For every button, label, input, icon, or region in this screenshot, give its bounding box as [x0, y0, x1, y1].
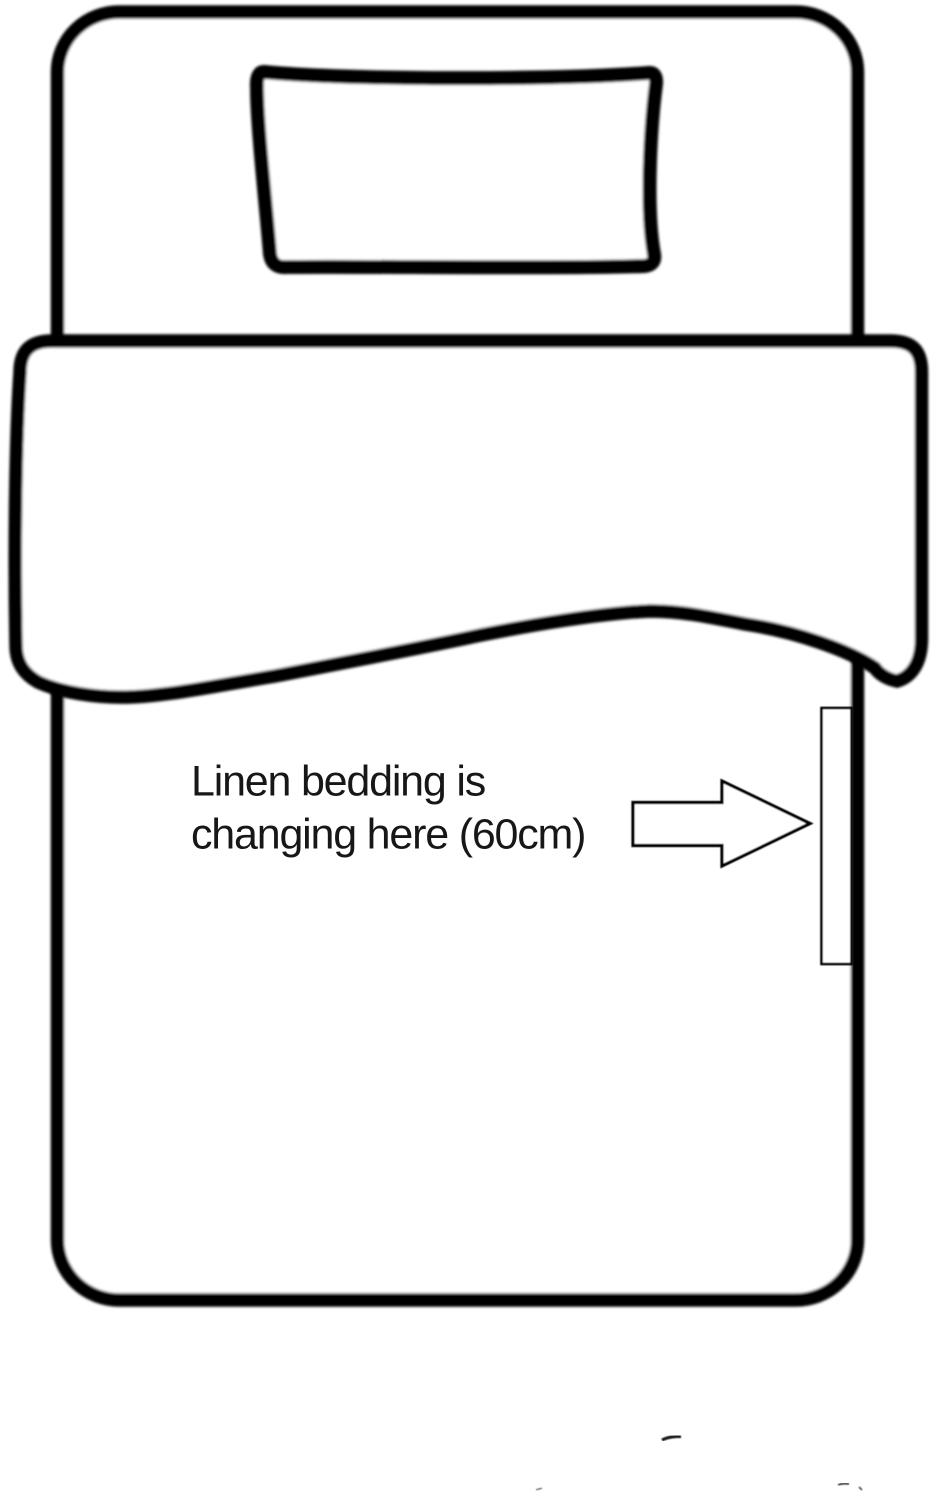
svg-text:Linen bedding is: Linen bedding is: [191, 758, 485, 806]
svg-text:changing here (60cm): changing here (60cm): [191, 811, 585, 859]
